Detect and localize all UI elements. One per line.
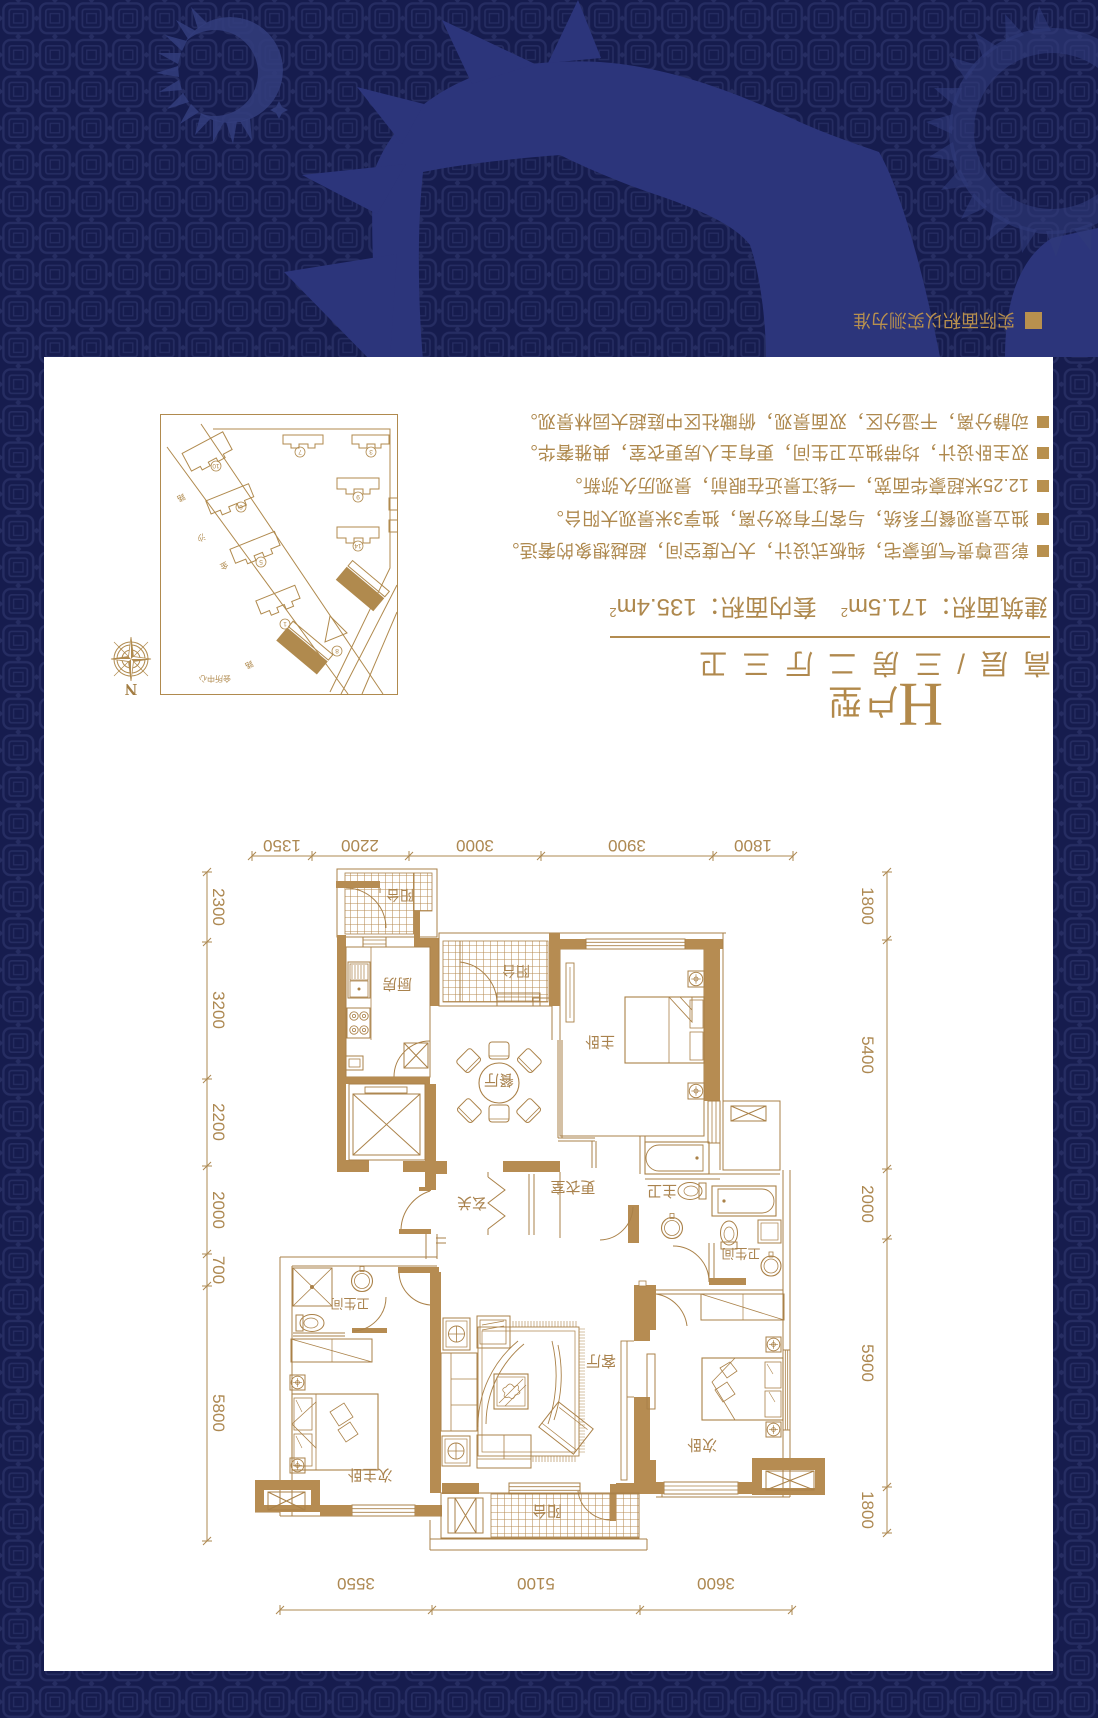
svg-text:5900: 5900: [858, 1344, 877, 1382]
svg-text:次主卧: 次主卧: [347, 1466, 392, 1483]
svg-text:8: 8: [335, 647, 339, 654]
svg-text:卫生间: 卫生间: [721, 1246, 760, 1261]
svg-text:700: 700: [209, 1256, 228, 1284]
svg-text:2: 2: [346, 577, 350, 584]
svg-text:5800: 5800: [209, 1394, 228, 1432]
svg-text:5400: 5400: [858, 1036, 877, 1074]
svg-text:3900: 3900: [608, 836, 646, 855]
svg-text:1800: 1800: [734, 836, 772, 855]
svg-text:3550: 3550: [337, 1574, 375, 1593]
svg-text:14: 14: [354, 542, 362, 549]
svg-text:N: N: [124, 680, 137, 699]
svg-text:2300: 2300: [209, 888, 228, 926]
svg-text:路: 路: [243, 659, 255, 672]
svg-text:1350: 1350: [263, 836, 301, 855]
svg-text:3600: 3600: [697, 1574, 735, 1593]
svg-text:阳台: 阳台: [502, 963, 530, 979]
svg-text:次卧: 次卧: [687, 1436, 717, 1453]
svg-text:5: 5: [259, 558, 263, 565]
svg-text:2000: 2000: [209, 1191, 228, 1229]
svg-text:3000: 3000: [456, 836, 494, 855]
svg-text:9: 9: [356, 493, 360, 500]
svg-text:客厅: 客厅: [586, 1352, 616, 1369]
svg-text:5100: 5100: [517, 1574, 555, 1593]
svg-text:厨房: 厨房: [382, 975, 412, 992]
svg-text:路: 路: [175, 492, 187, 505]
svg-text:会所中心: 会所中心: [199, 674, 231, 684]
svg-text:沙: 沙: [195, 532, 206, 544]
svg-text:更衣室: 更衣室: [550, 1178, 595, 1195]
svg-text:1800: 1800: [858, 887, 877, 925]
svg-text:2200: 2200: [209, 1103, 228, 1141]
svg-text:阳台: 阳台: [532, 1502, 562, 1519]
svg-text:主卧: 主卧: [585, 1033, 615, 1050]
svg-text:金: 金: [218, 560, 230, 573]
svg-text:主卫: 主卫: [647, 1182, 677, 1199]
svg-text:3: 3: [369, 448, 373, 455]
svg-text:玄关: 玄关: [457, 1194, 487, 1211]
svg-text:1: 1: [283, 620, 287, 627]
svg-text:2200: 2200: [341, 836, 379, 855]
svg-text:3200: 3200: [209, 991, 228, 1029]
svg-text:卫生间: 卫生间: [330, 1296, 369, 1311]
svg-text:7: 7: [298, 448, 302, 455]
svg-text:餐厅: 餐厅: [484, 1071, 514, 1088]
svg-text:10: 10: [212, 462, 220, 469]
svg-text:2000: 2000: [858, 1185, 877, 1223]
svg-text:阳台: 阳台: [386, 887, 414, 903]
svg-text:6: 6: [239, 503, 243, 510]
svg-text:1800: 1800: [858, 1491, 877, 1529]
